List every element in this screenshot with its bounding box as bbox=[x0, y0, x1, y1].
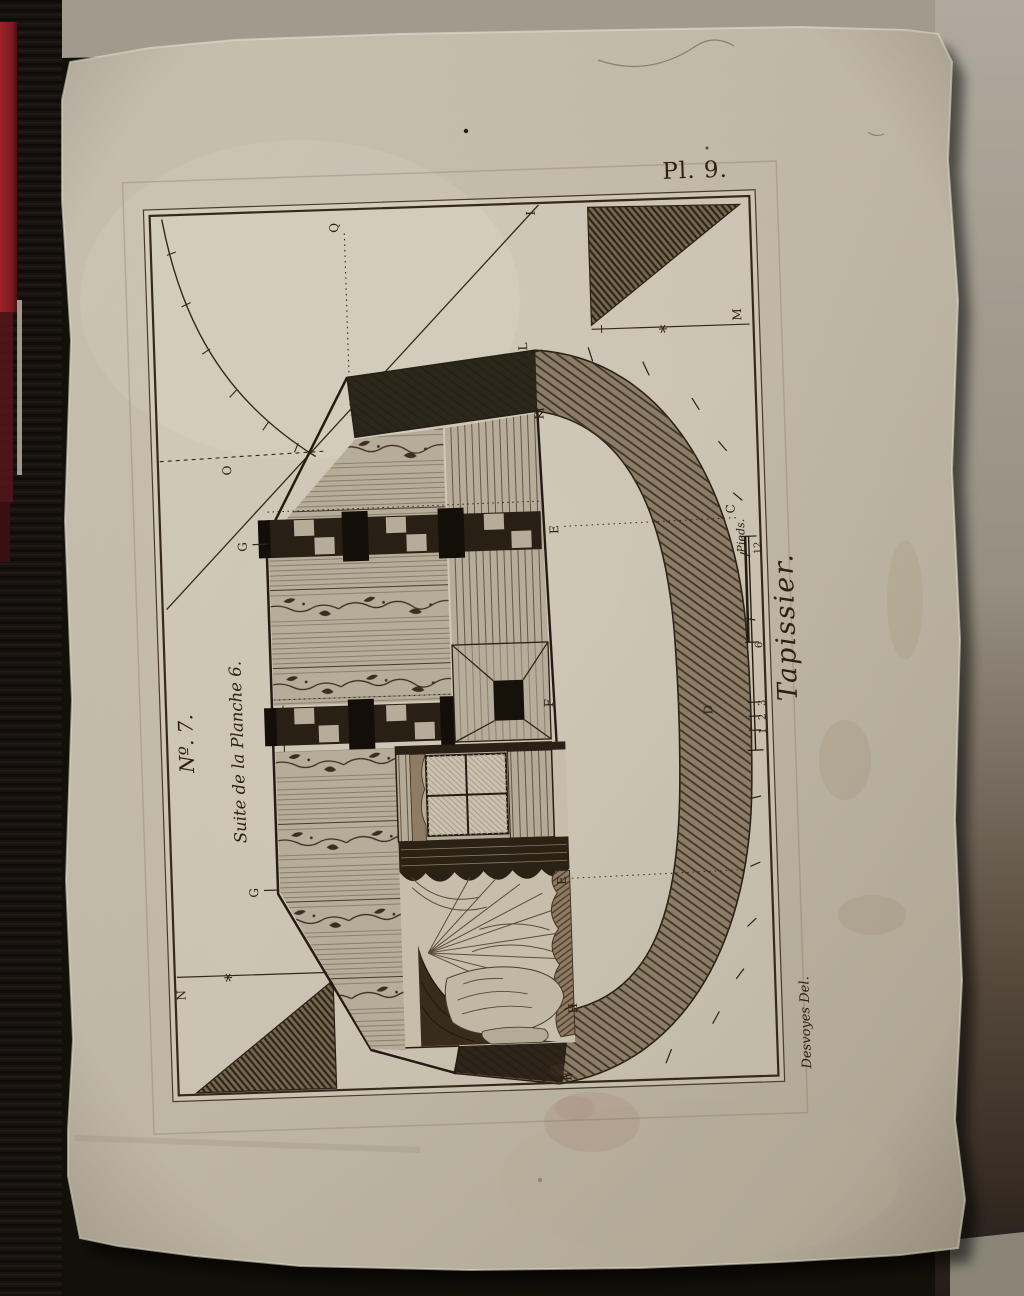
scale-tick-1: 1 bbox=[758, 727, 769, 734]
scale-tick-3: 3 bbox=[757, 699, 768, 706]
perspective-corridor bbox=[452, 642, 551, 742]
scale-tick-6: 6 bbox=[754, 642, 765, 649]
side-title: Tapissier. bbox=[768, 552, 804, 702]
series-number: Nº. 7. bbox=[173, 714, 199, 774]
ink-speck-1 bbox=[464, 129, 468, 133]
label-e-upper: E bbox=[547, 525, 561, 534]
stain-brown-2 bbox=[838, 895, 906, 935]
label-n: N bbox=[174, 990, 188, 1001]
stain-brown-3 bbox=[887, 540, 923, 660]
label-g-lower: G bbox=[247, 888, 261, 898]
scale-tick-2: 2 bbox=[757, 713, 768, 720]
asterisk-mark: * bbox=[222, 973, 242, 983]
signature: Desvoyes Del. bbox=[797, 976, 815, 1070]
label-k: K bbox=[532, 409, 546, 419]
book-page-sliver bbox=[17, 300, 22, 475]
label-h: H bbox=[566, 1003, 580, 1014]
asterisk-mark: * bbox=[656, 324, 676, 334]
label-l: L bbox=[516, 342, 530, 350]
label-f: F bbox=[542, 699, 556, 708]
label-d: D bbox=[701, 705, 715, 715]
photo-canvas: Pl. 9. Q I O * M bbox=[0, 0, 1024, 1296]
label-m: M bbox=[730, 308, 744, 321]
plate-number: Pl. 9. bbox=[662, 157, 728, 185]
photograph: Pl. 9. Q I O * M bbox=[0, 0, 1024, 1296]
label-g-upper: G bbox=[235, 542, 249, 552]
engraved-plate: Pl. 9. Q I O * M bbox=[122, 155, 817, 1134]
bed-perspective bbox=[395, 741, 575, 1047]
stain-pink-small bbox=[550, 1064, 570, 1076]
red-book-spine bbox=[0, 22, 17, 312]
label-o: O bbox=[220, 465, 234, 475]
label-q: Q bbox=[327, 222, 341, 232]
stain-brown-1 bbox=[819, 720, 871, 800]
ink-speck-3 bbox=[538, 1178, 542, 1182]
red-book-spine-end bbox=[0, 502, 10, 562]
label-i: I bbox=[524, 210, 538, 215]
red-book-spine-lower bbox=[0, 312, 13, 502]
window-side-panel bbox=[508, 750, 555, 838]
ink-speck-2 bbox=[706, 147, 709, 150]
stain-pink-large bbox=[544, 1092, 640, 1152]
stain-pink-inner bbox=[555, 1096, 595, 1120]
scale-tick-12: 12 bbox=[753, 541, 764, 554]
scale-corner-label: C bbox=[723, 504, 737, 514]
label-e-lower: E bbox=[555, 876, 569, 885]
